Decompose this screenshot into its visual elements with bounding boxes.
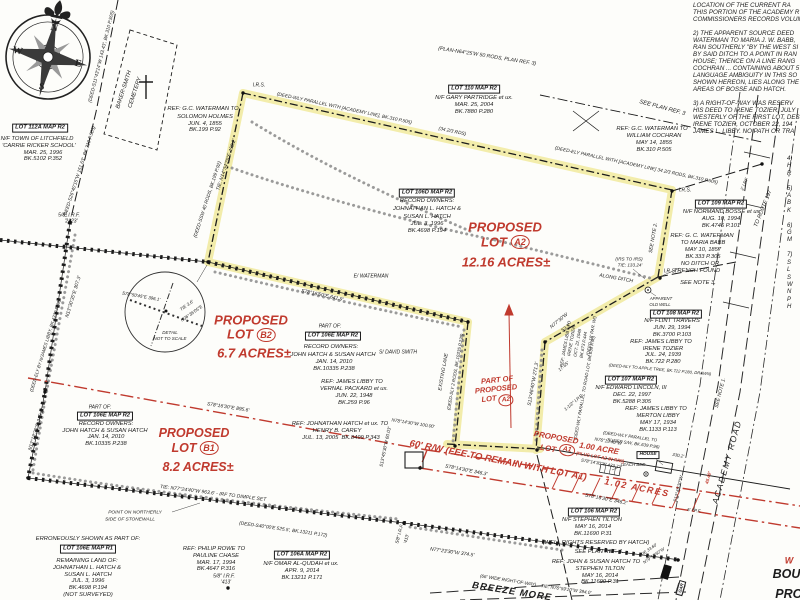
- plat-annotation: ERRONEOUSLY SHOWN AS PART OF:: [36, 537, 141, 543]
- plat-annotation: I.R.S.: [253, 84, 266, 89]
- plat-annotation: BK.5288 P.305: [613, 400, 651, 406]
- plat-annotation: REF: JAMES LIBBY TO: [625, 407, 687, 413]
- notes-fragment: H: [787, 163, 793, 170]
- lot-b1-acreage: 8.2 ACRES±: [162, 461, 233, 474]
- plat-annotation: NOT TO SCALE: [154, 337, 187, 342]
- lot-a2-designator: A2: [511, 235, 530, 249]
- plat-annotation: N/F GARY PARTRIDGE et ux.: [435, 96, 513, 102]
- plat-annotation: BK.13211 P.171: [281, 576, 322, 582]
- plat-annotation: BK.1133 P.113: [639, 428, 676, 434]
- notes-fragment: H: [787, 304, 793, 311]
- notes-line: RAN SOUTHERLY "BY THE WEST SI: [693, 44, 800, 51]
- plat-annotation: BK.4698 P.194: [408, 229, 446, 235]
- compass-rose: N E S W: [0, 0, 101, 107]
- plat-annotation: N/F OMAR AL-QUDAH et ux.: [263, 562, 338, 568]
- plat-annotation: BK.5102 P.352: [24, 157, 62, 163]
- plat-annotation: SEE PLAN REF. 4.: [575, 550, 624, 556]
- compass-e: E: [74, 58, 83, 70]
- plat-annotation: BK.722 P.280: [645, 360, 680, 366]
- notes-fragment: 7): [787, 252, 793, 259]
- lot-b2-designator: B2: [257, 328, 276, 342]
- plat-annotation: RECORD OWNERS:: [400, 199, 454, 205]
- plat-annotation: N/F FLINT TRAVERS: [644, 319, 700, 325]
- title-fragment-proposed: PROP: [775, 588, 800, 600]
- plat-annotation: BK.259 P.96: [338, 401, 370, 407]
- plat-annotation: MAY 14, 1855: [636, 141, 672, 147]
- plat-annotation: JOHN HATCH & SUSAN HATCH: [290, 353, 375, 359]
- notes-line: WESTERLY OF THE FIRST LOT, DES: [693, 114, 800, 121]
- notes-fragment: 5): [787, 186, 793, 193]
- north-flow-arrow: [509, 312, 511, 428]
- house-label: HOUSE: [636, 451, 659, 459]
- plat-annotation: PART OF:: [89, 406, 112, 411]
- plat-annotation: SUSAN L. HATCH: [403, 215, 451, 221]
- lot-112a-label: LOT 112A MAP R2: [12, 124, 68, 133]
- plat-annotation: WILLIAM COCHRAN: [627, 134, 682, 140]
- plat-annotation: BK.11690 P.31: [574, 532, 612, 538]
- plat-annotation: VERNAL PACKARD et ux.: [320, 387, 388, 393]
- plat-annotation: LOT: [227, 328, 253, 341]
- notes-line: WATERMAN TO MARIA J. W. BABB,: [693, 37, 800, 44]
- plat-annotation: BK.4746 P.101: [702, 224, 740, 230]
- plat-annotation: PART OF:: [319, 325, 342, 330]
- notes-fragment: W: [787, 282, 793, 289]
- notes-line: LOCATION OF THE CURRENT RA: [693, 2, 800, 9]
- notes-line: HOUSE; THENCE ON A LINE RANG: [693, 58, 800, 65]
- plat-annotation: TRENCH FOUND: [674, 269, 720, 275]
- plat-annotation: REMAINING LAND OF:: [56, 559, 117, 565]
- highlight-lines: [208, 93, 672, 450]
- notes-fragment: K: [787, 208, 793, 215]
- compass-s: S: [38, 81, 46, 93]
- notes-line: IRENE TOZIER, OCTOBER 22, 194: [693, 121, 800, 128]
- plat-annotation: REF: JOHN & SUSAN HATCH TO: [552, 560, 640, 566]
- plat-annotation: BK.199 P.92: [189, 128, 221, 134]
- notes-fragment: [787, 178, 793, 185]
- lot-108-label: LOT 108 MAP R2: [650, 310, 702, 319]
- plat-annotation: 'CARRIE RICKER SCHOOL': [2, 144, 76, 150]
- notes-fragment: N: [787, 289, 793, 296]
- plat-annotation: REF: JAMES LIBBY TO: [321, 380, 383, 386]
- plat-annotation: DETAIL: [162, 331, 177, 336]
- notes-line: 2) THE APPARENT SOURCE DEED: [693, 30, 800, 37]
- lot-107-label: LOT 107 MAP R2: [605, 376, 657, 385]
- plat-annotation: BK.7880 P.280: [455, 110, 493, 116]
- plat-annotation: LOT 106E MAP R2: [77, 412, 133, 421]
- notes-fragment: 6): [787, 223, 793, 230]
- notes-fragment: A: [787, 193, 793, 200]
- lot-106d-label: LOT 106D MAP R2: [399, 189, 455, 198]
- plat-annotation: TO MARIA BABB: [681, 241, 726, 247]
- plat-annotation: LOT: [481, 394, 497, 403]
- plat-annotation: REF: G.C. WATERMAN TO: [616, 127, 687, 133]
- plat-annotation: BK.3700 P.103: [653, 333, 691, 339]
- notes-fragment: B: [787, 200, 793, 207]
- notes-fragment: G: [787, 230, 793, 237]
- plat-annotation: BK.11690 P.31: [581, 580, 619, 586]
- notes-line: SHOWN HEREON, LIES ALONG THE: [693, 79, 800, 86]
- plat-annotation: TIE: 133.24': [618, 264, 643, 269]
- plat-annotation: BK.10335 P.238: [85, 442, 126, 448]
- notes-text: LOCATION OF THE CURRENT RATHIS PORTION O…: [693, 2, 800, 135]
- compass-n: N: [49, 22, 59, 34]
- plat-annotation: N/F STEPHEN TILTON: [562, 518, 622, 524]
- plat-annotation: (WELL RIGHTS RESERVED BY HATCH): [543, 541, 650, 547]
- notes-line: BY SAID DITCH TO A POINT IN RAN: [693, 51, 800, 58]
- plat-annotation: '413': [221, 581, 231, 586]
- plat-annotation: LOT: [481, 236, 507, 249]
- plat-annotation: N/F NORMAND BOSSE et ux.: [683, 210, 761, 216]
- plat-annotation: REF: G. C. WATERMAN: [670, 234, 733, 240]
- plat-annotation: REF: PHILIP ROWE TO: [183, 547, 245, 553]
- plat-annotation: POINT ON NORTHERLY: [108, 512, 162, 517]
- lot-106e-label: LOT 106E MAP R2: [305, 332, 361, 341]
- plat-annotation: N/F EDWARD LINCOLN, III: [595, 386, 666, 392]
- plat-annotation: BK.333 P.305: [685, 255, 720, 261]
- notes-fragment: [787, 215, 793, 222]
- notes-line: COCHRAN ... CONTAINING ABOUT 5: [693, 65, 800, 72]
- proposed-lot-a2-title: PROPOSED: [468, 221, 542, 234]
- notes-line: LANGUAGE AMBIGUITY IN THIS SO: [693, 72, 800, 79]
- plat-annotation: BK.4698 P.194: [69, 586, 107, 592]
- plat-annotation: REF: G.C. WATERMAN TO: [167, 107, 238, 113]
- proposed-lot-b1-title: PROPOSED: [159, 427, 230, 440]
- plat-annotation: I.R.S.: [679, 189, 692, 194]
- notes-line: AREAS OF BOSSE AND HATCH.: [693, 86, 800, 93]
- plat-annotation: E/ WATERMAN: [354, 275, 389, 280]
- lot-106a-label: LOT 106A MAP R2: [274, 551, 330, 560]
- notes-line: HIS DEED TO IRENE TOZIER, JULY: [693, 107, 800, 114]
- notes-line: JAMES L. LIBBY. NO PATH OR TRA: [693, 128, 800, 135]
- plat-annotation: OLD WELL: [649, 302, 670, 306]
- plat-annotation: BK.10335 P.238: [313, 367, 354, 373]
- plat-annotation: (IRS TO IRS): [615, 258, 642, 263]
- plat-annotation: LOT: [172, 442, 197, 455]
- plat-annotation: SEE NOTE 3.: [680, 281, 716, 287]
- plat-annotation: BK.4647 P.316: [197, 567, 235, 573]
- title-fragment-boundary: BOUN: [773, 568, 800, 581]
- plat-annotation: BK.310 P.505: [636, 148, 671, 154]
- plat-annotation: MERTON LIBBY: [637, 414, 680, 420]
- plat-annotation: JUL. 13, 2005 BK.8499 P.343: [302, 436, 380, 442]
- notes-fragment: S: [787, 275, 793, 282]
- plat-annotation: N/F TOWN OF LITCHFIELD: [1, 137, 74, 143]
- notes-fragment: 4): [787, 156, 793, 163]
- lot-106-label: LOT 106 MAP R2: [568, 508, 620, 517]
- notes-fragment: S: [787, 260, 793, 267]
- notes-fragment: M: [787, 237, 793, 244]
- notes-fragment: P: [787, 297, 793, 304]
- lot-b2-acreage: 6.7 ACRES±: [217, 347, 291, 360]
- notes-line: THIS PORTION OF THE ACADEMY R: [693, 9, 800, 16]
- plat-annotation: SOLOMON HOLMES: [177, 115, 233, 121]
- notes-fragment: L: [787, 267, 793, 274]
- survey-plat: N E S W REF: G.C. WATERMAN TOWILLIAM COC…: [0, 0, 800, 600]
- notes-edge-fragments: 4)HR 5)ABK 6)GM 7)SLSWNPH: [787, 156, 793, 312]
- plat-annotation: NO DITCH OR: [681, 262, 719, 268]
- plat-annotation: JUL. 3, 1996: [411, 222, 444, 228]
- lot-109-label: LOT 109 MAP R2: [695, 200, 747, 209]
- notes-line: [693, 93, 800, 100]
- plat-annotation: (NOT SURVEYED): [63, 593, 113, 599]
- plat-annotation: JAN. 14, 2010: [316, 360, 353, 366]
- notes-fragment: R: [787, 171, 793, 178]
- lot-b1-designator: B1: [200, 441, 219, 455]
- title-fragment-red: W: [785, 557, 794, 566]
- plat-annotation: RECORD OWNERS:: [304, 345, 358, 351]
- plat-annotation: JOHNATHAN L. HATCH &: [393, 207, 461, 213]
- plat-annotation: S/ DAVID SMITH: [379, 351, 417, 356]
- black-square-symbol: [405, 452, 423, 468]
- notes-line: COMMISSIONERS RECORDS VOLUM: [693, 16, 800, 23]
- leach-bed-label: LEACH BED: [621, 463, 646, 467]
- plat-annotation: SIDE OF STONEWALL: [105, 518, 155, 523]
- plat-annotation: '2123': [64, 220, 77, 225]
- plat-annotation: LOT 106E MAP R1: [60, 545, 116, 554]
- notes-line: 3) A RIGHT-OF-WAY WAS RESERV: [693, 100, 800, 107]
- notes-line: [693, 23, 800, 30]
- proposed-lot-b2-title: PROPOSED: [214, 314, 288, 327]
- lot-a2-acreage: 12.16 ACRES±: [462, 256, 550, 269]
- lot-110-label: LOT 110 MAP R2: [448, 85, 500, 94]
- notes-fragment: [787, 245, 793, 252]
- plat-annotation: REF: JOHNATHAN HATCH et ux. TO: [292, 422, 388, 428]
- compass-w: W: [12, 45, 24, 58]
